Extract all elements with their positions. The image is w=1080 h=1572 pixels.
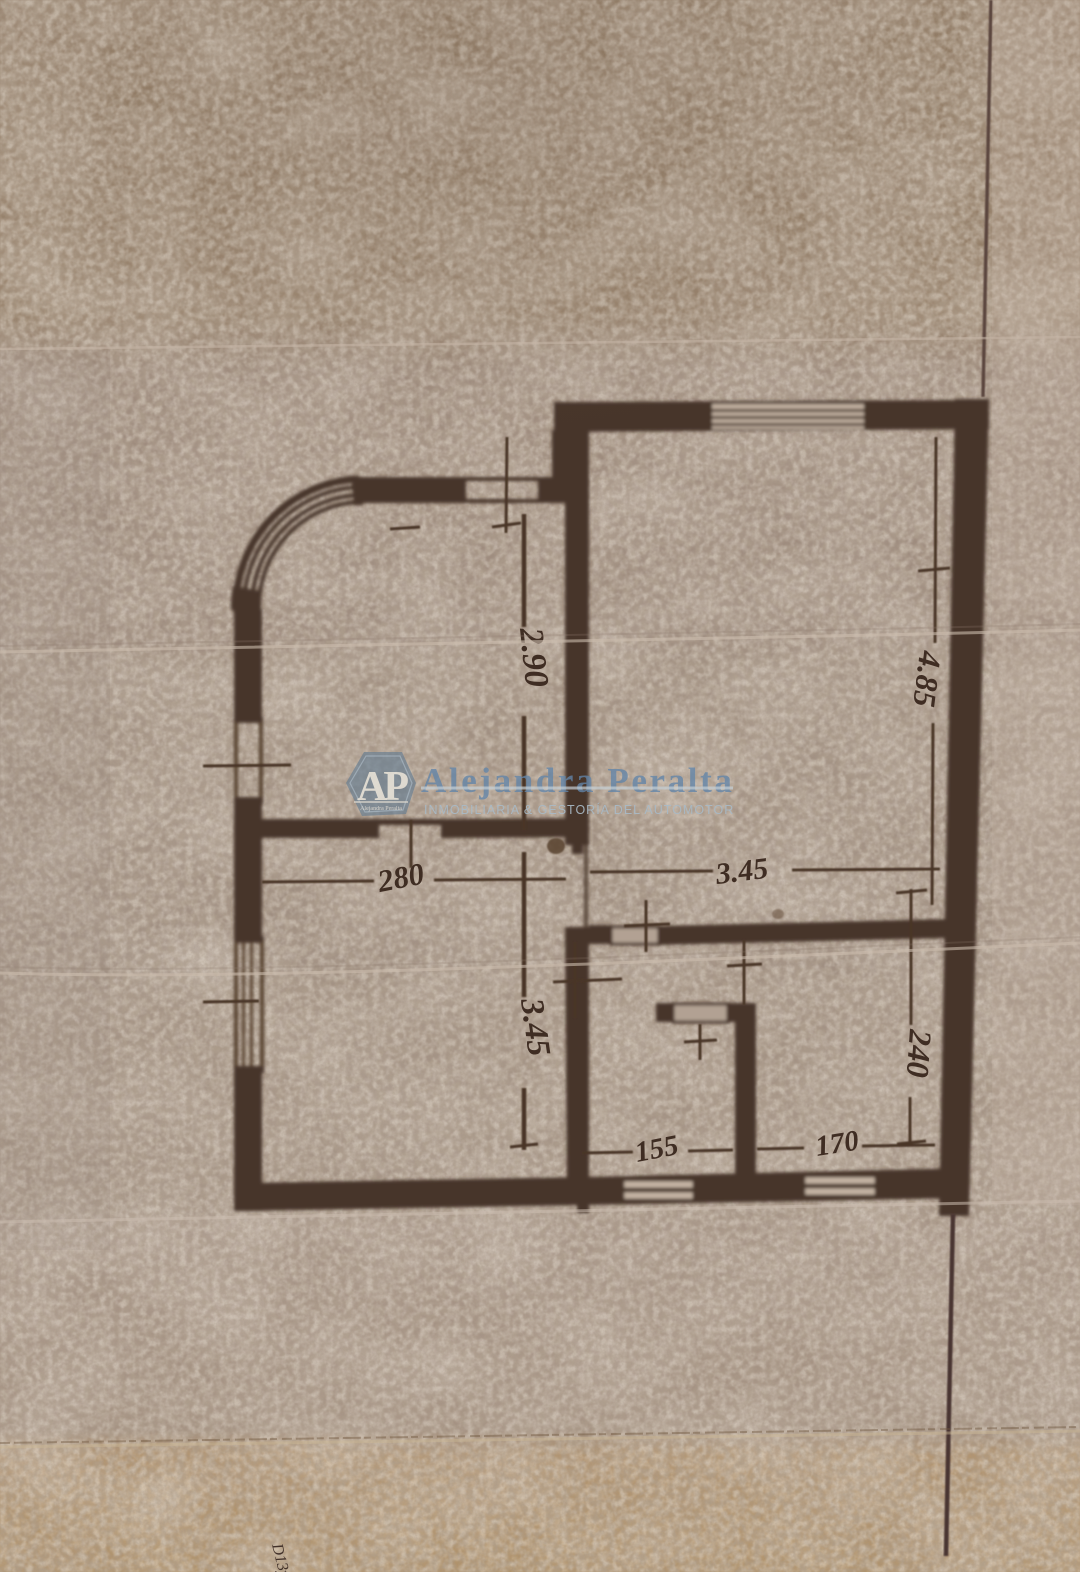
svg-text:3.45: 3.45 [713, 852, 770, 891]
svg-text:INMOBILIARIA & GESTORÍA DEL AU: INMOBILIARIA & GESTORÍA DEL AUTOMOTOR [424, 802, 734, 817]
svg-text:AP: AP [357, 764, 408, 810]
svg-text:170: 170 [813, 1125, 861, 1163]
svg-text:Alejandra Peralta: Alejandra Peralta [360, 806, 402, 812]
svg-text:Alejandra Peralta: Alejandra Peralta [421, 761, 734, 800]
svg-text:240: 240 [900, 1028, 939, 1079]
